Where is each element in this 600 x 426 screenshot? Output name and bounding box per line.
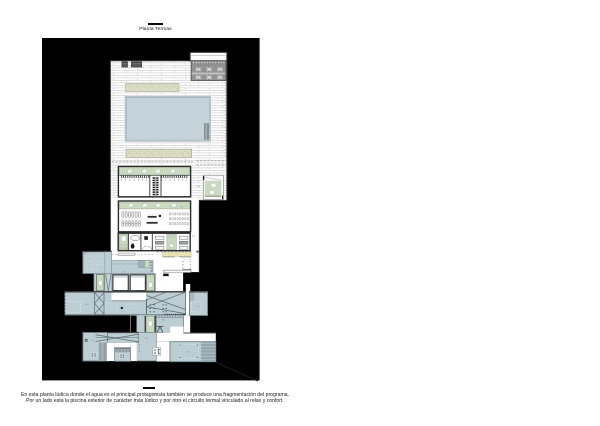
svg-text:· · ·: · · · <box>119 258 122 260</box>
svg-text:4·B: 4·B <box>196 306 198 308</box>
svg-text:····: ···· <box>152 213 155 215</box>
svg-text:41 · 1 · 14: 41 · 1 · 14 <box>183 259 190 261</box>
